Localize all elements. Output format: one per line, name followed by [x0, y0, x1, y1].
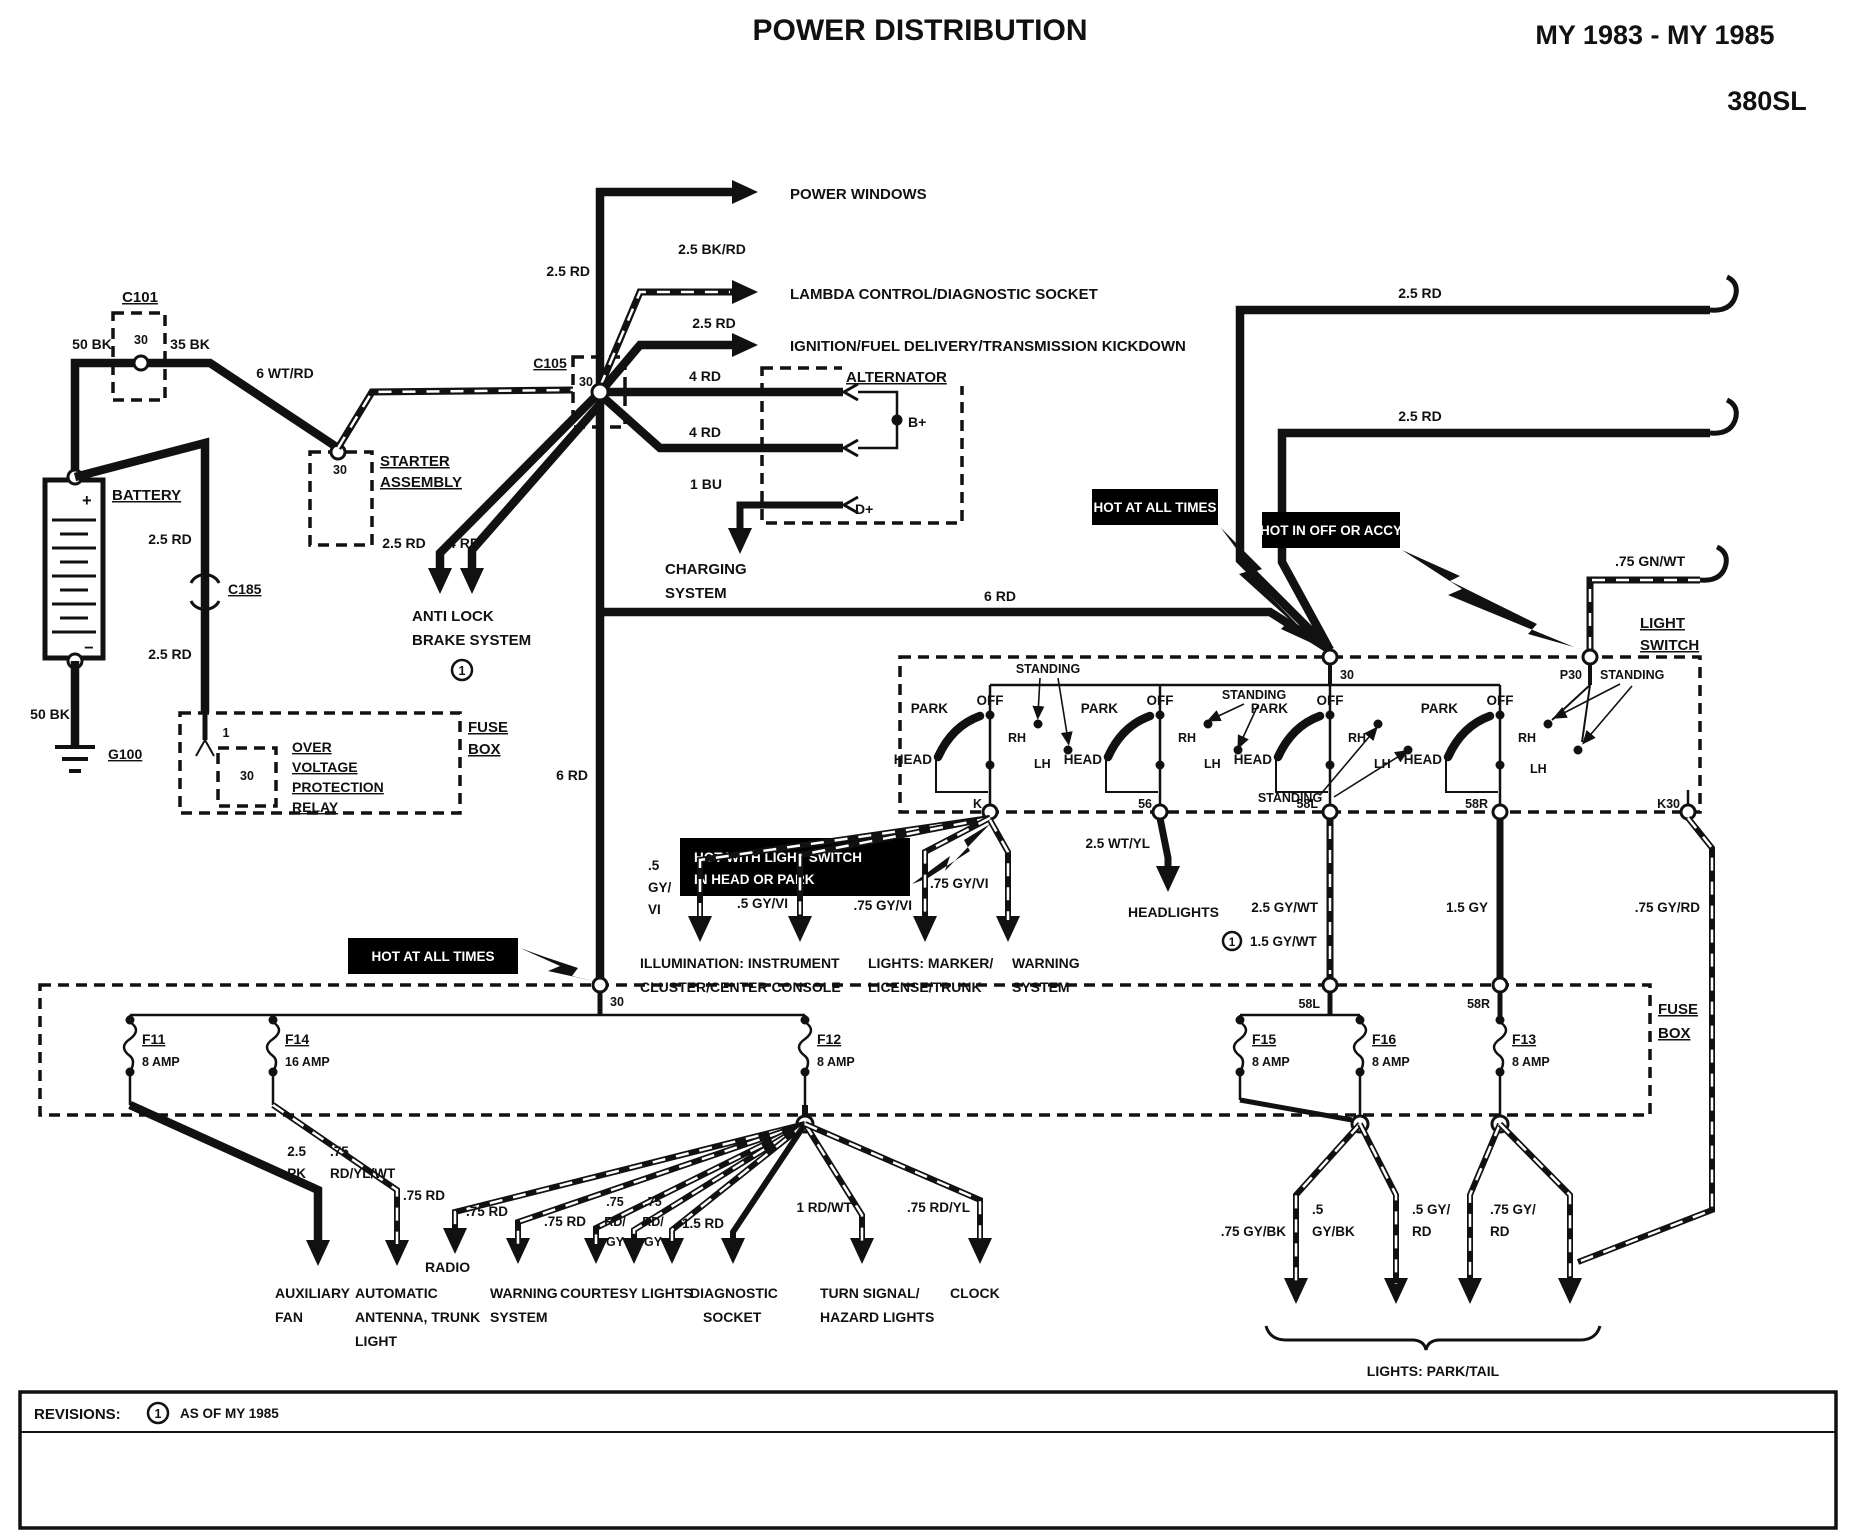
ls-56-node: [1153, 805, 1167, 819]
standing-arrow-p30-lh: [1586, 686, 1632, 740]
wire-label-5gyvi-s1: .5: [648, 858, 660, 873]
dest-ignition: IGNITION/FUEL DELIVERY/TRANSMISSION KICK…: [790, 338, 1186, 355]
sg1-standing-arrow-2: [1058, 678, 1068, 740]
sg4-head-branch: [1446, 760, 1498, 792]
fuse-f11-name: F11: [142, 1031, 166, 1047]
fuse-f16-name: F16: [1372, 1031, 1396, 1047]
ovp-fusebox-label-1: FUSE: [468, 719, 508, 736]
dest-marker-2: LICENSE/TRUNK: [868, 979, 982, 995]
wire-label-75rdgy-2c: GY: [644, 1235, 663, 1249]
wire-label-50bk: 50 BK: [72, 336, 112, 352]
wire-label-15gy: 1.5 GY: [1446, 900, 1488, 915]
fuse-f15-name: F15: [1252, 1031, 1276, 1047]
offpage-hook-3: [1700, 547, 1726, 580]
dest-warning-lower-2: SYSTEM: [490, 1309, 548, 1325]
sg2-lh: LH: [1204, 757, 1221, 771]
dest-diagnostic-2: SOCKET: [703, 1309, 762, 1325]
wire-label-5gybk-1: .5: [1312, 1202, 1324, 1217]
wire-label-15rd: 1.5 RD: [682, 1216, 724, 1231]
wire-label-75gyvi-1: .75 GY/VI: [853, 898, 912, 913]
ls-58r-node: [1493, 805, 1507, 819]
alternator-bplus-node: [892, 415, 903, 426]
light-switch-label-2: SWITCH: [1640, 637, 1699, 654]
wire-label-6rd-horiz: 6 RD: [984, 588, 1016, 604]
switch-group-4: OFF PARK HEAD RH LH: [1404, 685, 1583, 812]
dest-antenna-1: AUTOMATIC: [355, 1285, 438, 1301]
wire-label-75gyrd-s1: .75 GY/: [1490, 1202, 1536, 1217]
fuse-f16: F16 8 AMP: [1354, 1015, 1410, 1116]
ls-terminal-p30-node: [1583, 650, 1597, 664]
ls-terminal-58l-label: 58L: [1296, 797, 1318, 811]
sg4-lower-contact: [1496, 761, 1505, 770]
dest-warning-upper-2: SYSTEM: [1012, 979, 1070, 995]
wire-75rdyl-stripe: [805, 1124, 980, 1244]
fuse-f15-rating: 8 AMP: [1252, 1055, 1290, 1069]
lightning-bolt-icon-2: [1402, 550, 1574, 647]
dest-clock: CLOCK: [950, 1285, 1000, 1301]
fuse-f14-name: F14: [285, 1031, 309, 1047]
fuse-f16-rating: 8 AMP: [1372, 1055, 1410, 1069]
wire-4rd-2: [604, 398, 843, 448]
ovp-fork-symbol: [196, 740, 214, 756]
ovp-terminal-30: 30: [240, 769, 254, 783]
sg3-wiper: [1278, 716, 1320, 757]
ovp-label-2: VOLTAGE: [292, 759, 358, 775]
sg2-park: PARK: [1081, 701, 1119, 716]
wire-label-75rd-courtesy: .75 RD: [544, 1214, 586, 1229]
wire-label-4rd-abs: 4 RD: [448, 535, 480, 551]
fuse-f14-rating: 16 AMP: [285, 1055, 330, 1069]
sg2-standing-arrow-1: [1212, 704, 1244, 719]
starter-label-1: STARTER: [380, 453, 450, 470]
wire-label-25rd-r2: 2.5 RD: [1398, 408, 1442, 424]
sg2-pivot: [1156, 711, 1165, 720]
ls-feed-drops: [1330, 664, 1590, 685]
sg4-rh: RH: [1518, 731, 1536, 745]
sg2-standing: STANDING: [1222, 688, 1286, 702]
wire-label-25rd-pw: 2.5 RD: [546, 263, 590, 279]
wire-label-75gnwt: .75 GN/WT: [1615, 553, 1685, 569]
wire-label-15gywt: 1.5 GY/WT: [1250, 934, 1318, 949]
dest-headlights: HEADLIGHTS: [1128, 904, 1219, 920]
dest-marker-1: LIGHTS: MARKER/: [868, 955, 993, 971]
sg4-off: OFF: [1487, 693, 1514, 708]
wire-label-75gyrd: .75 GY/RD: [1635, 900, 1701, 915]
sg4-pivot: [1496, 711, 1505, 720]
connector-c105-label: C105: [533, 355, 567, 371]
wire-label-25rd-ign: 2.5 RD: [692, 315, 736, 331]
wire-label-75rdgy-1b: RD/: [604, 1215, 626, 1229]
sg1-pivot: [986, 711, 995, 720]
wire-label-75rd-warning: .75 RD: [466, 1204, 508, 1219]
wire-label-6rd-vert: 6 RD: [556, 767, 588, 783]
fuse-f12-name: F12: [817, 1031, 841, 1047]
sg1-lower-contact: [986, 761, 995, 770]
offpage-hook-2: [1710, 400, 1736, 433]
wire-label-25wtyl: 2.5 WT/YL: [1085, 836, 1150, 851]
sg1-wiper: [938, 716, 980, 757]
wire-label-75gybk: .75 GY/BK: [1221, 1224, 1287, 1239]
sg2-head-branch: [1106, 760, 1158, 792]
sg2-rh-contact: [1204, 720, 1213, 729]
wire-label-25bkrd: 2.5 BK/RD: [678, 241, 746, 257]
abs-revision-mark: 1: [459, 664, 466, 678]
fb-terminal-58r-label: 58R: [1467, 997, 1490, 1011]
banner-hot-accy-text: HOT IN OFF OR ACCY: [1260, 523, 1402, 538]
banner-hwls-text-2: IN HEAD OR PARK: [694, 872, 815, 887]
ls-terminal-p30-label: P30: [1560, 668, 1582, 682]
sg2-rh: RH: [1178, 731, 1196, 745]
wire-5gybk: [1360, 1124, 1396, 1290]
fuse-f13-rating: 8 AMP: [1512, 1055, 1550, 1069]
dest-antenna-3: LIGHT: [355, 1333, 397, 1349]
wire-label-1rdwt: 1 RD/WT: [797, 1200, 853, 1215]
fuse-f14: F14 16 AMP: [267, 1015, 330, 1105]
fb-terminal-30-label: 30: [610, 995, 624, 1009]
ovp-label-3: PROTECTION: [292, 779, 384, 795]
wire-label-5gyrd-2: RD: [1412, 1224, 1432, 1239]
wire-power-windows: [600, 192, 744, 384]
dest-lambda: LAMBDA CONTROL/DIAGNOSTIC SOCKET: [790, 286, 1098, 303]
fb-terminal-58l-node: [1323, 978, 1337, 992]
wire-label-75rdgy-2b: RD/: [642, 1215, 664, 1229]
wire-label-6wtrd: 6 WT/RD: [256, 365, 314, 381]
wire-label-4rd-1: 4 RD: [689, 368, 721, 384]
ls-k30-node: [1681, 805, 1695, 819]
wire-label-75rdyl: .75 RD/YL: [907, 1200, 970, 1215]
dest-abs-2: BRAKE SYSTEM: [412, 632, 531, 649]
fb-terminal-58r-node: [1493, 978, 1507, 992]
wire-label-5gyvi-s3: VI: [648, 902, 661, 917]
wire-75gybk: [1296, 1124, 1360, 1290]
wire-label-35bk: 35 BK: [170, 336, 210, 352]
revisions-box: [20, 1392, 1836, 1528]
switch-group-3: OFF PARK HEAD RH LH STANDING: [1234, 685, 1413, 812]
sg3-standing-arrow-2: [1334, 753, 1404, 797]
sg3-pivot: [1326, 711, 1335, 720]
dest-courtesy: COURTESY LIGHTS: [560, 1285, 693, 1301]
dest-auxfan-1: AUXILIARY: [275, 1285, 351, 1301]
model-years: MY 1983 - MY 1985: [1535, 20, 1774, 50]
wire-label-25rd-abs: 2.5 RD: [382, 535, 426, 551]
sg3-head-branch: [1276, 760, 1328, 792]
alternator-label: ALTERNATOR: [846, 369, 947, 386]
dest-diagnostic-1: DIAGNOSTIC: [690, 1285, 778, 1301]
wire-75gyvi-2: [990, 820, 1008, 928]
ground-symbol: [55, 747, 95, 771]
c101-terminal-30: 30: [134, 333, 148, 347]
sg4-park: PARK: [1421, 701, 1459, 716]
wire-6rd-horizontal: [600, 612, 1330, 650]
dest-charging-1: CHARGING: [665, 561, 747, 578]
f15-output-link: [1240, 1100, 1352, 1120]
dest-auxfan-2: FAN: [275, 1309, 303, 1325]
sg4-rh-contact: [1544, 720, 1553, 729]
ls-terminal-k-label: K: [973, 797, 982, 811]
ovp-label-4: RELAY: [292, 799, 339, 815]
wiring-diagram-canvas: POWER DISTRIBUTION MY 1983 - MY 1985 380…: [0, 0, 1856, 1536]
ovp-terminal-1: 1: [223, 726, 230, 740]
wire-label-25pk-1: 2.5: [287, 1144, 306, 1159]
dest-charging-2: SYSTEM: [665, 585, 727, 602]
dest-warning-lower-1: WARNING: [490, 1285, 558, 1301]
sg1-rh: RH: [1008, 731, 1026, 745]
wire-label-5gybk-2: GY/BK: [1312, 1224, 1355, 1239]
connector-c185-label: C185: [228, 581, 262, 597]
sg2-off: OFF: [1147, 693, 1174, 708]
sg3-lh: LH: [1374, 757, 1391, 771]
wire-75gyrd-k30-stripe: [1578, 818, 1712, 1262]
sg3-lower-contact: [1326, 761, 1335, 770]
ovp-label-1: OVER: [292, 739, 332, 755]
dest-abs-1: ANTI LOCK: [412, 608, 494, 625]
connector-c101-label: C101: [122, 289, 158, 306]
park-tail-brace: [1266, 1326, 1600, 1350]
dest-park-tail: LIGHTS: PARK/TAIL: [1367, 1363, 1500, 1379]
dest-radio: RADIO: [425, 1259, 470, 1275]
page-title: POWER DISTRIBUTION: [753, 14, 1088, 47]
fuse-f12: F12 8 AMP: [799, 1015, 855, 1105]
wire-label-75gyrd-s2: RD: [1490, 1224, 1510, 1239]
wire-label-75rd-radio: .75 RD: [403, 1188, 445, 1203]
wire-5gybk-stripe: [1360, 1124, 1396, 1284]
sg1-off: OFF: [977, 693, 1004, 708]
banner-hot-lower-text: HOT AT ALL TIMES: [372, 949, 495, 964]
sg4-wiper: [1448, 716, 1490, 757]
wire-label-25pk-2: PK: [287, 1166, 306, 1181]
starter-terminal-30: 30: [333, 463, 347, 477]
sg3-head: HEAD: [1234, 752, 1273, 767]
sg4-head: HEAD: [1404, 752, 1443, 767]
ground-g100-label: G100: [108, 746, 142, 762]
sg1-head: HEAD: [894, 752, 933, 767]
fuse-f12-rating: 8 AMP: [817, 1055, 855, 1069]
banner-hot-upper-text: HOT AT ALL TIMES: [1094, 500, 1217, 515]
ls-terminal-30-node: [1323, 650, 1337, 664]
revision-mark-58l: 1: [1229, 937, 1236, 949]
wire-label-25rd-2: 2.5 RD: [148, 646, 192, 662]
wire-label-75rdylwt-2: RD/YL/WT: [330, 1166, 396, 1181]
revisions-note: AS OF MY 1985: [180, 1406, 279, 1421]
ls-terminal-58r-label: 58R: [1465, 797, 1488, 811]
sg4-lh: LH: [1530, 762, 1547, 776]
wire-75gybk-stripe: [1296, 1124, 1360, 1284]
alternator-socket-arrows: [844, 384, 858, 513]
starter-label-2: ASSEMBLY: [380, 474, 462, 491]
wire-75rdyl: [805, 1124, 980, 1250]
dest-antenna-2: ANTENNA, TRUNK: [355, 1309, 480, 1325]
offpage-hook-1: [1710, 277, 1736, 310]
battery-plus-sign: +: [82, 492, 92, 510]
fb-terminal-30-node: [593, 978, 607, 992]
main-fuse-box: [40, 985, 1650, 1115]
wire-label-75rdgy-1c: GY: [606, 1235, 625, 1249]
ls-terminal-30-label: 30: [1340, 668, 1354, 682]
main-fusebox-label-2: BOX: [1658, 1025, 1691, 1042]
ls-terminal-56-label: 56: [1138, 797, 1152, 811]
dest-illumination-1: ILLUMINATION: INSTRUMENT: [640, 955, 840, 971]
sg1-lh: LH: [1034, 757, 1051, 771]
wire-label-5gyrd-1: .5 GY/: [1412, 1202, 1451, 1217]
wire-25wtyl: [1160, 818, 1168, 878]
wire-label-4rd-2: 4 RD: [689, 424, 721, 440]
fuse-f11: F11 8 AMP: [124, 1015, 180, 1105]
wire-label-50bk-lower: 50 BK: [30, 706, 70, 722]
sg1-standing-arrow-1: [1038, 678, 1040, 714]
c101-terminal-node: [134, 356, 148, 370]
wire-label-75rdgy-2a: .75: [644, 1195, 661, 1209]
c105-terminal-30: 30: [579, 375, 593, 389]
sg3-park: PARK: [1251, 701, 1289, 716]
sg1-head-branch: [936, 760, 988, 792]
wire-label-25gywt: 2.5 GY/WT: [1251, 900, 1319, 915]
wire-4rd-abs: [472, 404, 600, 580]
sg2-wiper: [1108, 716, 1150, 757]
wire-label-5gyvi: .5 GY/VI: [737, 896, 788, 911]
ovp-fusebox-label-2: BOX: [468, 741, 501, 758]
sg1-park: PARK: [911, 701, 949, 716]
alternator-bplus-link: [858, 392, 897, 448]
dest-turn-2: HAZARD LIGHTS: [820, 1309, 934, 1325]
wire-6wtrd-stripe: [338, 390, 573, 448]
ls-terminal-k30-label: K30: [1657, 797, 1680, 811]
revisions-label: REVISIONS:: [34, 1406, 121, 1423]
lightning-bolt-icon-4: [520, 948, 598, 982]
fb-terminal-58l-label: 58L: [1298, 997, 1320, 1011]
c105-hub-node: [592, 384, 608, 400]
sg2-lower-contact: [1156, 761, 1165, 770]
sg3-off: OFF: [1317, 693, 1344, 708]
dest-illumination-2: CLUSTER/CENTER CONSOLE: [640, 979, 841, 995]
wire-6wtrd: [338, 390, 573, 448]
wire-label-75rdgy-1a: .75: [606, 1195, 623, 1209]
ls-standing-p30-label: STANDING: [1600, 668, 1664, 682]
ls-58l-node: [1323, 805, 1337, 819]
sg2-head: HEAD: [1064, 752, 1103, 767]
sg1-rh-contact: [1034, 720, 1043, 729]
fuse-f13-name: F13: [1512, 1031, 1536, 1047]
dest-power-windows: POWER WINDOWS: [790, 186, 927, 203]
fuse-f11-rating: 8 AMP: [142, 1055, 180, 1069]
alternator-dplus-label: D+: [855, 501, 873, 517]
wire-label-25rd-r1: 2.5 RD: [1398, 285, 1442, 301]
fuse-f13: F13 8 AMP: [1494, 1015, 1550, 1116]
wire-label-1bu: 1 BU: [690, 476, 722, 492]
main-fusebox-label-1: FUSE: [1658, 1001, 1698, 1018]
battery-label: BATTERY: [112, 487, 181, 504]
revisions-mark: 1: [155, 1407, 162, 1421]
dest-turn-1: TURN SIGNAL/: [820, 1285, 920, 1301]
wire-label-25rd-1: 2.5 RD: [148, 531, 192, 547]
wire-25rd-abs: [440, 398, 594, 580]
wire-label-5gyvi-s2: GY/: [648, 880, 672, 895]
ls-p30-links: [1552, 685, 1590, 742]
sg1-standing: STANDING: [1016, 662, 1080, 676]
battery-minus-sign: −: [84, 639, 94, 657]
dest-warning-upper-1: WARNING: [1012, 955, 1080, 971]
sg3-rh-contact: [1374, 720, 1383, 729]
light-switch-label-1: LIGHT: [1640, 615, 1685, 632]
fuse-f15: F15 8 AMP: [1234, 1015, 1290, 1100]
wire-label-75rdylwt-1: .75: [330, 1144, 349, 1159]
sg4-lh-contact: [1574, 746, 1583, 755]
wire-75gyrd-k30: [1578, 818, 1712, 1262]
model-name: 380SL: [1727, 86, 1807, 116]
alternator-bplus-label: B+: [908, 414, 926, 430]
wire-label-75gyvi-2: .75 GY/VI: [930, 876, 989, 891]
